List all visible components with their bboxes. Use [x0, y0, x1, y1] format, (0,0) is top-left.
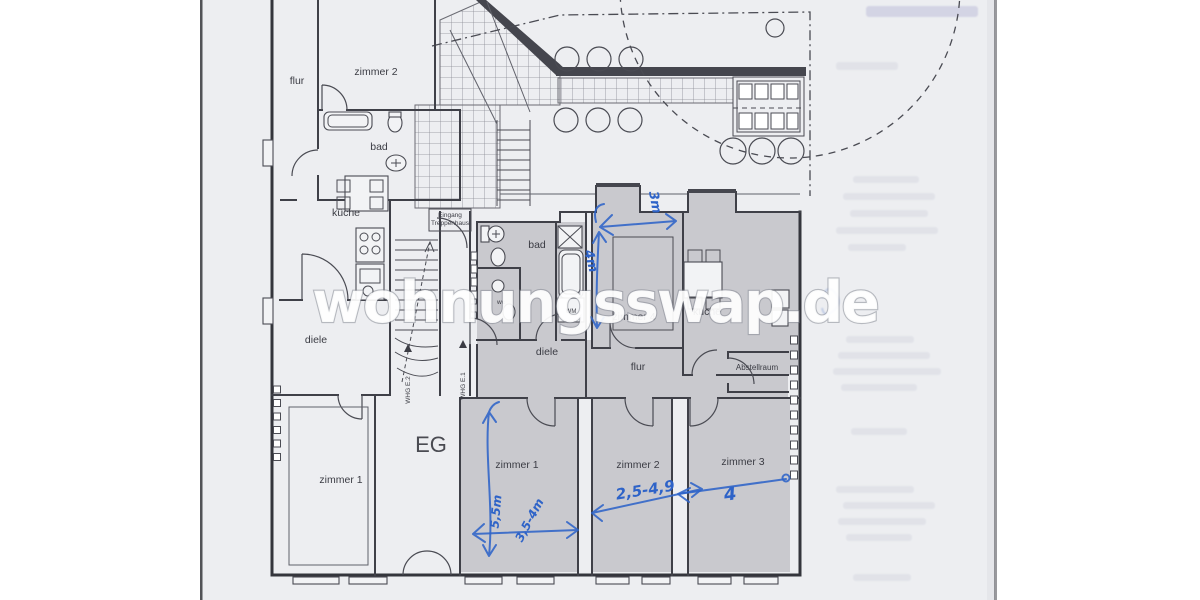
room-label-zimmer2-right: zimmer 2	[616, 459, 659, 471]
room-label-abstellraum: Abstellraum	[736, 363, 779, 372]
paper-left-edge	[200, 0, 203, 600]
bay-window-band-2	[688, 189, 736, 193]
room-label-zimmer2-left: zimmer 2	[354, 66, 397, 78]
room-fill-zimmer4-bay	[596, 186, 640, 212]
room-label-flur-left: flur	[290, 75, 305, 87]
room-fill-zimmer1	[460, 398, 578, 572]
kitchen-table-left	[345, 176, 388, 211]
room-label-bad-left: bad	[370, 141, 388, 153]
room-label-flur-right: flur	[631, 361, 646, 373]
scanned-floorplan-page: Eingang Treppenhaus WHG E.2 WHG E.1	[0, 0, 1200, 600]
floor-label-eg: EG	[415, 432, 447, 457]
floorplan-svg: Eingang Treppenhaus WHG E.2 WHG E.1	[0, 0, 1200, 600]
stove-icon	[356, 228, 384, 262]
measurement-zimmer1-height: 5,5m	[488, 494, 505, 529]
room-label-bad-right: bad	[528, 239, 546, 251]
room-label-kueche-left: küche	[332, 207, 360, 219]
paper-right-shade	[987, 0, 995, 600]
whg-e1-label: WHG E.1	[460, 372, 467, 400]
room-label-zimmer3-right: zimmer 3	[721, 456, 764, 468]
tiled-walkway	[558, 78, 733, 103]
bay-window-band-1	[596, 183, 640, 187]
entrance-label-line2: Treppenhaus	[431, 220, 470, 227]
room-label-zimmer1-right: zimmer 1	[495, 459, 538, 471]
toilet-icon-bad	[491, 248, 505, 266]
paper-right-edge	[994, 0, 997, 600]
room-fill-kueche-bay	[688, 192, 736, 212]
tiled-area-lower	[415, 105, 500, 208]
watermark-text: wohnungsswap.de	[312, 270, 878, 336]
shaded-rooms	[460, 186, 800, 572]
entrance-label-line1: Eingang	[438, 212, 462, 219]
room-label-diele-right: diele	[536, 346, 558, 358]
room-label-zimmer1-left: zimmer 1	[319, 474, 362, 486]
whg-e2-label: WHG E.2	[405, 376, 412, 404]
hatched-wall-horizontal	[556, 67, 806, 76]
